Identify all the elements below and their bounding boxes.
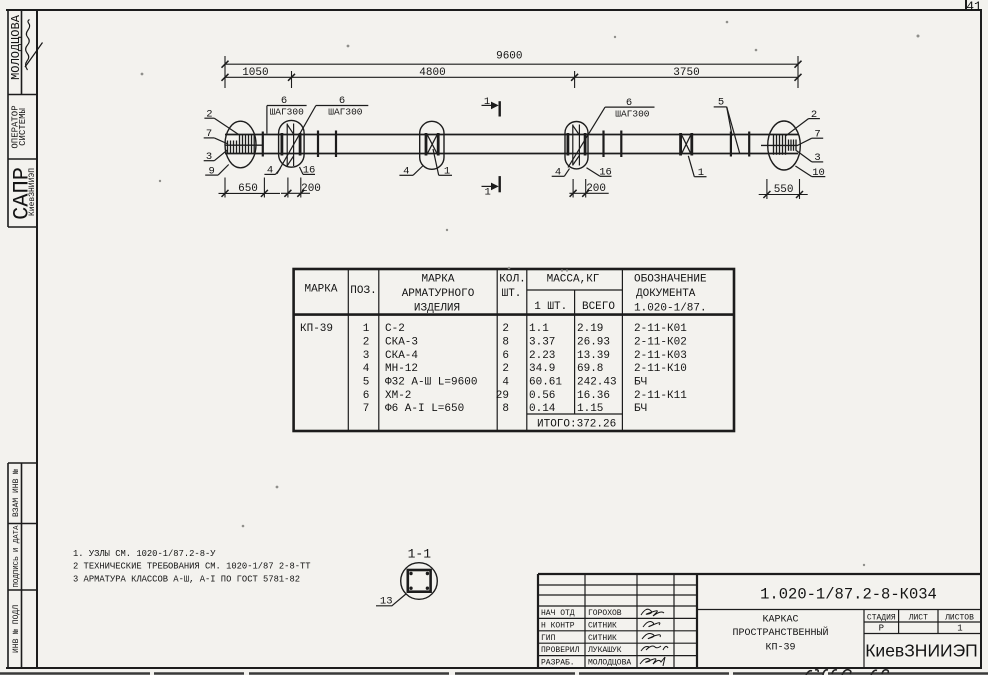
svg-text:3 АРМАТУРА КЛАССОВ А-Ш, А-I ПО: 3 АРМАТУРА КЛАССОВ А-Ш, А-I ПО ГОСТ 5781… bbox=[73, 574, 300, 584]
svg-text:ГОРОХОВ: ГОРОХОВ bbox=[588, 609, 622, 618]
svg-text:2.23: 2.23 bbox=[529, 350, 555, 362]
svg-text:СИТНИК: СИТНИК bbox=[588, 621, 617, 630]
svg-text:5: 5 bbox=[718, 97, 724, 109]
svg-text:С-2: С-2 bbox=[385, 323, 405, 335]
svg-text:1: 1 bbox=[957, 624, 962, 634]
svg-text:3750: 3750 bbox=[673, 67, 699, 79]
svg-text:ВЗАМ ИНВ №: ВЗАМ ИНВ № bbox=[12, 469, 21, 517]
svg-text:8: 8 bbox=[502, 403, 509, 415]
svg-text:60.61: 60.61 bbox=[529, 377, 562, 389]
svg-text:СКА-4: СКА-4 bbox=[385, 350, 418, 362]
svg-text:ЛУКАШУК: ЛУКАШУК bbox=[587, 646, 622, 655]
svg-text:13.39: 13.39 bbox=[577, 350, 610, 362]
svg-text:650: 650 bbox=[238, 183, 258, 195]
svg-text:МАССА,КГ: МАССА,КГ bbox=[547, 274, 600, 286]
svg-text:КАРКАС: КАРКАС bbox=[762, 615, 798, 626]
svg-text:БЧ: БЧ bbox=[634, 377, 647, 389]
svg-text:7: 7 bbox=[363, 403, 370, 415]
svg-text:2: 2 bbox=[811, 109, 817, 121]
svg-text:СКА-3: СКА-3 bbox=[385, 336, 418, 348]
svg-text:6: 6 bbox=[339, 95, 345, 107]
svg-text:10: 10 bbox=[812, 167, 825, 179]
svg-text:3: 3 bbox=[814, 152, 820, 164]
svg-text:КП-39: КП-39 bbox=[765, 643, 795, 654]
svg-text:ШАГ300: ШАГ300 bbox=[270, 107, 305, 118]
svg-text:БЧ: БЧ bbox=[634, 403, 647, 415]
svg-text:200: 200 bbox=[586, 183, 606, 195]
svg-text:5: 5 bbox=[363, 377, 370, 389]
svg-text:ЛИСТОВ: ЛИСТОВ bbox=[944, 614, 974, 623]
svg-text:4800: 4800 bbox=[419, 67, 445, 79]
svg-text:16: 16 bbox=[303, 165, 316, 177]
svg-text:ШАГ300: ШАГ300 bbox=[615, 109, 650, 120]
svg-text:ПОЗ.: ПОЗ. bbox=[350, 285, 376, 297]
svg-text:6: 6 bbox=[502, 350, 509, 362]
svg-text:ИТОГО:372.26: ИТОГО:372.26 bbox=[537, 419, 616, 431]
svg-text:1: 1 bbox=[485, 187, 491, 199]
svg-text:МАРКА: МАРКА bbox=[421, 274, 454, 286]
svg-text:ДОКУМЕНТА: ДОКУМЕНТА bbox=[636, 288, 696, 300]
svg-text:550: 550 bbox=[774, 184, 794, 196]
svg-text:242.43: 242.43 bbox=[577, 377, 617, 389]
svg-text:0.14: 0.14 bbox=[529, 403, 556, 415]
svg-text:2 ТЕХНИЧЕСКИЕ ТРЕБОВАНИЯ СМ. 1: 2 ТЕХНИЧЕСКИЕ ТРЕБОВАНИЯ СМ. 1020-1/87 2… bbox=[73, 562, 311, 572]
svg-text:ГИП: ГИП bbox=[541, 634, 556, 643]
svg-text:1: 1 bbox=[698, 167, 704, 179]
svg-text:1.020-1/87.2-8-К034: 1.020-1/87.2-8-К034 bbox=[760, 586, 937, 604]
svg-text:7: 7 bbox=[814, 129, 820, 141]
svg-text:ПОДПИСЬ И ДАТА: ПОДПИСЬ И ДАТА bbox=[13, 525, 21, 588]
svg-text:КП-39: КП-39 bbox=[300, 323, 333, 335]
svg-text:КиевЗНИИЭП: КиевЗНИИЭП bbox=[28, 168, 37, 216]
svg-text:8: 8 bbox=[502, 336, 509, 348]
svg-text:1: 1 bbox=[363, 323, 370, 335]
svg-text:ОБОЗНАЧЕНИЕ: ОБОЗНАЧЕНИЕ bbox=[634, 274, 707, 286]
svg-text:СИТНИК: СИТНИК bbox=[588, 634, 617, 643]
svg-text:2: 2 bbox=[502, 323, 509, 335]
svg-text:1: 1 bbox=[484, 96, 490, 108]
svg-text:МН-12: МН-12 bbox=[385, 363, 418, 375]
svg-text:3: 3 bbox=[206, 151, 212, 163]
svg-text:Н КОНТР: Н КОНТР bbox=[541, 621, 575, 630]
svg-text:АРМАТУРНОГО: АРМАТУРНОГО bbox=[402, 288, 475, 300]
svg-text:Ф32 А-Ш L=9600: Ф32 А-Ш L=9600 bbox=[385, 377, 477, 389]
svg-text:2: 2 bbox=[502, 363, 509, 375]
svg-text:СИСТЕМЫ: СИСТЕМЫ bbox=[18, 108, 28, 146]
svg-text:6: 6 bbox=[281, 95, 287, 107]
svg-text:1.15: 1.15 bbox=[577, 403, 603, 415]
svg-text:2-11-К02: 2-11-К02 bbox=[634, 336, 687, 348]
svg-text:ЛИСТ: ЛИСТ bbox=[908, 614, 928, 623]
svg-text:4: 4 bbox=[267, 165, 273, 177]
svg-text:0.56: 0.56 bbox=[529, 390, 555, 402]
svg-text:41: 41 bbox=[966, 0, 982, 14]
svg-text:ШАГ300: ШАГ300 bbox=[328, 107, 363, 118]
svg-text:29: 29 bbox=[496, 390, 509, 402]
svg-text:26.93: 26.93 bbox=[577, 336, 610, 348]
svg-text:МОЛОДЦОВА: МОЛОДЦОВА bbox=[588, 659, 631, 668]
svg-text:1050: 1050 bbox=[242, 67, 268, 79]
svg-text:4: 4 bbox=[502, 377, 509, 389]
svg-text:ИЗДЕЛИЯ: ИЗДЕЛИЯ bbox=[414, 302, 460, 314]
svg-text:1.020-1/87.: 1.020-1/87. bbox=[634, 302, 707, 314]
svg-text:9600: 9600 bbox=[496, 51, 522, 63]
svg-text:34.9: 34.9 bbox=[529, 363, 555, 375]
svg-text:НАЧ ОТД: НАЧ ОТД bbox=[541, 609, 575, 618]
svg-text:Ф6 А-I L=650: Ф6 А-I L=650 bbox=[385, 403, 464, 415]
svg-text:2: 2 bbox=[363, 336, 370, 348]
svg-text:1.1: 1.1 bbox=[529, 323, 549, 335]
svg-text:3.37: 3.37 bbox=[529, 336, 555, 348]
svg-text:ПРОСТРАНСТВЕННЫЙ: ПРОСТРАНСТВЕННЫЙ bbox=[732, 625, 828, 639]
svg-text:9: 9 bbox=[208, 165, 214, 177]
svg-text:200: 200 bbox=[301, 183, 321, 195]
svg-text:2-11-К11: 2-11-К11 bbox=[634, 390, 687, 402]
svg-text:2-11-К01: 2-11-К01 bbox=[634, 323, 687, 335]
svg-text:4: 4 bbox=[555, 167, 561, 179]
svg-text:2.19: 2.19 bbox=[577, 323, 603, 335]
svg-text:ИНВ № ПОДЛ: ИНВ № ПОДЛ bbox=[12, 605, 21, 653]
svg-text:1: 1 bbox=[444, 166, 450, 178]
svg-text:СТАДИЯ: СТАДИЯ bbox=[867, 614, 896, 623]
svg-text:МАРКА: МАРКА bbox=[304, 284, 337, 296]
svg-text:16.36: 16.36 bbox=[577, 390, 610, 402]
svg-text:1-1: 1-1 bbox=[408, 547, 432, 562]
svg-text:13: 13 bbox=[380, 596, 393, 608]
svg-text:Р: Р bbox=[879, 624, 884, 634]
svg-text:МОЛОДЦОВА: МОЛОДЦОВА bbox=[9, 14, 23, 80]
svg-text:КОЛ.: КОЛ. bbox=[499, 274, 525, 286]
svg-text:КиевЗНИИЭП: КиевЗНИИЭП bbox=[865, 641, 978, 661]
svg-text:16: 16 bbox=[599, 167, 612, 179]
svg-text:1 ШТ.: 1 ШТ. bbox=[534, 301, 567, 313]
svg-text:2: 2 bbox=[206, 109, 212, 121]
svg-text:4: 4 bbox=[403, 166, 409, 178]
svg-text:69.8: 69.8 bbox=[577, 363, 603, 375]
svg-text:6: 6 bbox=[363, 390, 370, 402]
svg-text:4: 4 bbox=[363, 363, 370, 375]
svg-text:2-11-К10: 2-11-К10 bbox=[634, 363, 687, 375]
svg-text:РАЗРАБ.: РАЗРАБ. bbox=[541, 659, 575, 668]
svg-text:ВСЕГО: ВСЕГО bbox=[582, 301, 615, 313]
svg-text:7: 7 bbox=[206, 128, 212, 140]
svg-text:ХМ-2: ХМ-2 bbox=[385, 390, 411, 402]
svg-text:1. УЗЛЫ СМ. 1020-1/87.2-8-У: 1. УЗЛЫ СМ. 1020-1/87.2-8-У bbox=[73, 549, 216, 559]
svg-text:ШТ.: ШТ. bbox=[502, 288, 522, 300]
svg-text:ПРОВЕРИЛ: ПРОВЕРИЛ bbox=[541, 646, 580, 655]
svg-text:2-11-К03: 2-11-К03 bbox=[634, 350, 687, 362]
svg-text:6: 6 bbox=[626, 97, 632, 109]
svg-text:3: 3 bbox=[363, 350, 370, 362]
